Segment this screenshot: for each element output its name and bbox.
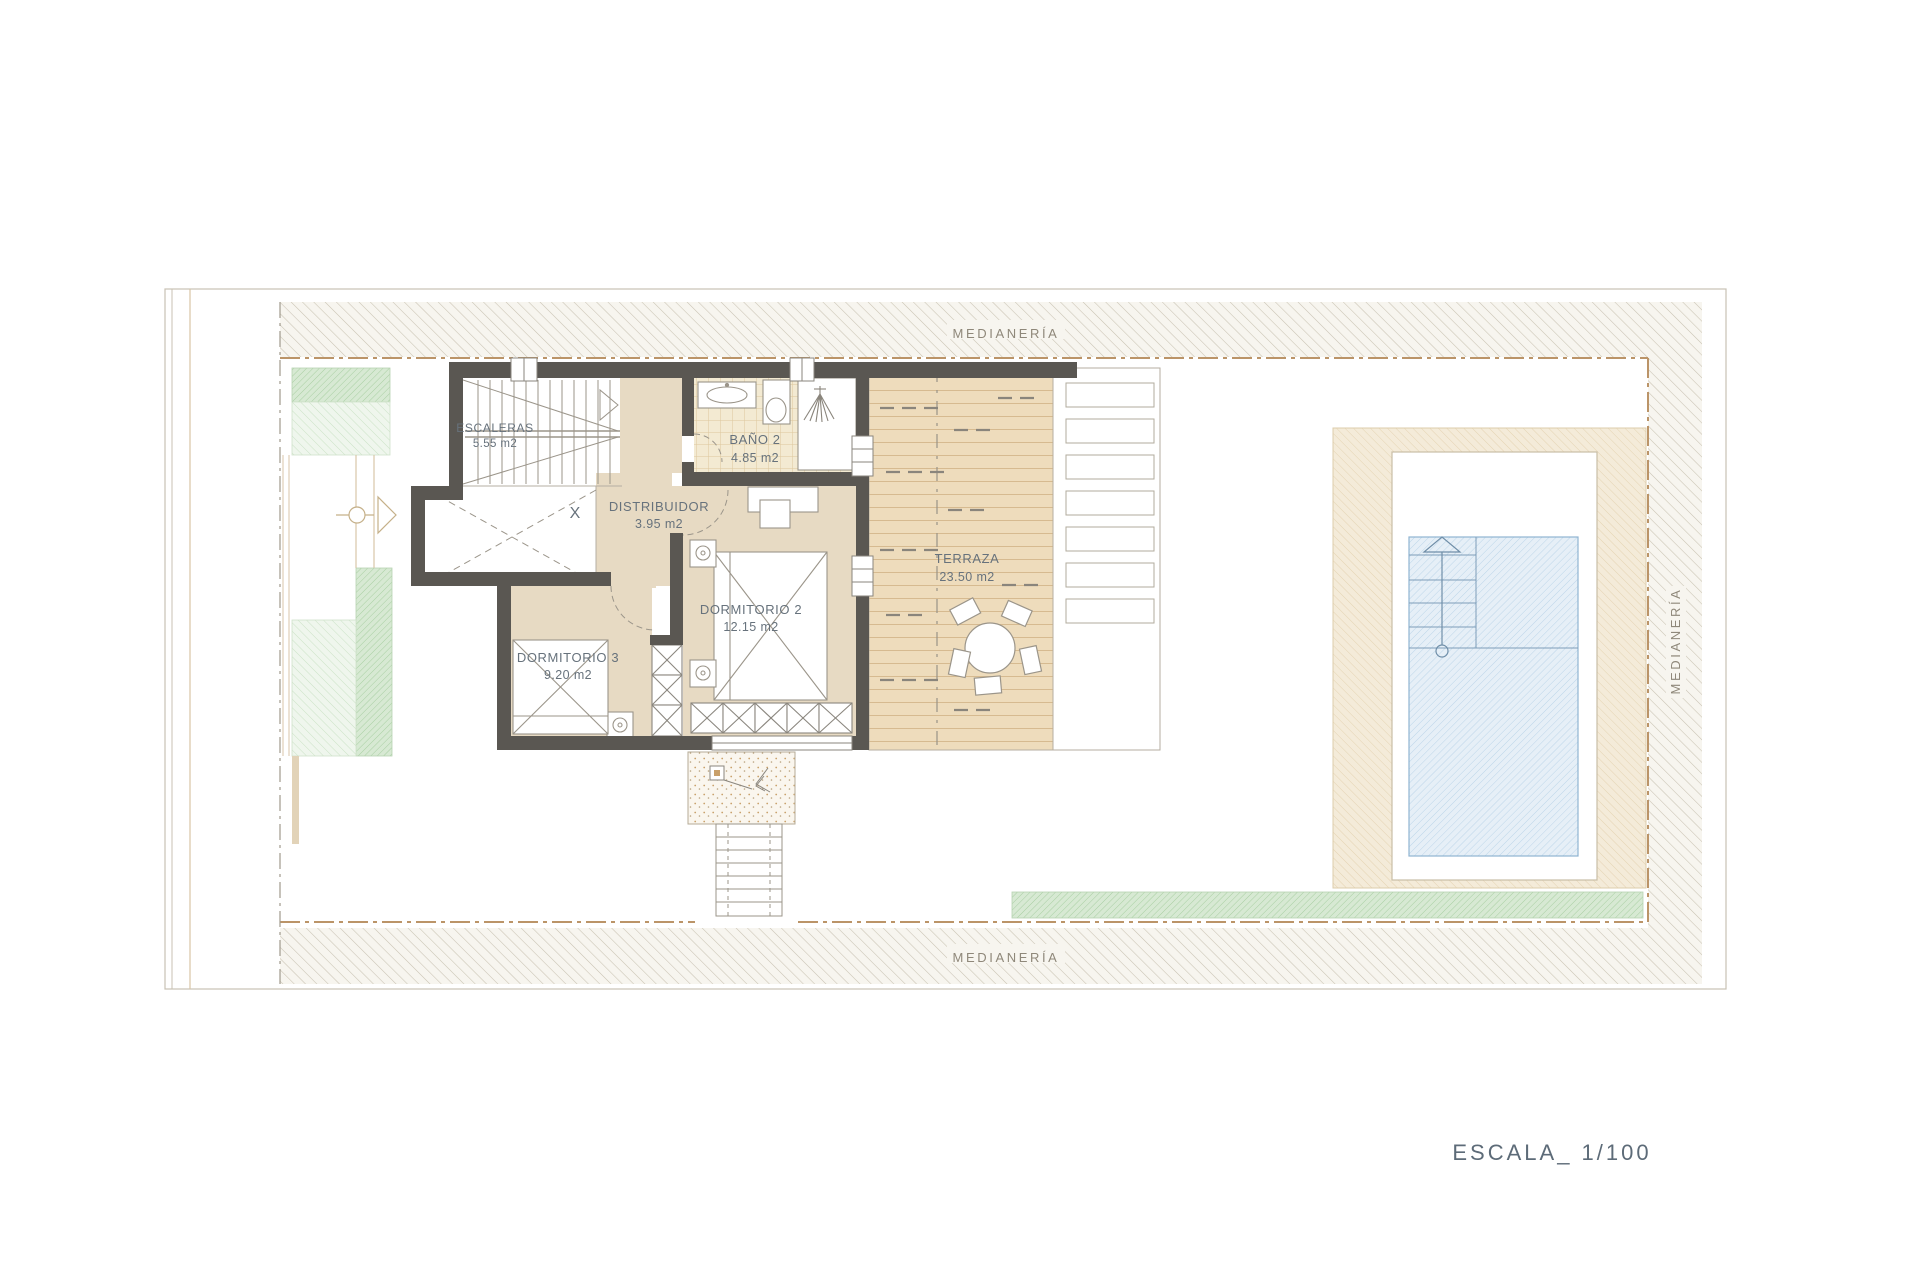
stairs-arrow-icon [600,390,618,420]
room-area-dormitorio3: 9.20 m2 [544,668,592,682]
room-label-escaleras: ESCALERAS [456,421,533,435]
scale-label: ESCALA_ 1/100 [1452,1140,1651,1165]
path-node-marker [349,507,365,523]
desk-chair [760,500,790,528]
wall-bath-bottom [682,472,857,486]
room-label-bano2: BAÑO 2 [729,432,780,447]
path-arrow-icon [378,497,396,533]
pergola-louvers [1066,383,1154,623]
medianeria-label-right: MEDIANERÍA [1668,588,1683,695]
entry-steps [716,824,782,916]
shower-tray [798,378,856,470]
medianeria-label-top: MEDIANERÍA [953,326,1060,341]
room-area-distribuidor: 3.95 m2 [635,517,683,531]
wall-dorm3-left [497,572,511,750]
pool [1333,428,1646,888]
wardrobe-column [652,645,682,736]
room-label-terraza: TERRAZA [935,551,1000,566]
room-area-bano2: 4.85 m2 [731,451,779,465]
floor-plan-drawing: ESCALERAS 5.55 m2 BAÑO 2 4.85 m2 DISTRIB… [0,0,1920,1280]
garden-left [283,368,396,844]
medianeria-label-bottom: MEDIANERÍA [953,950,1060,965]
porch-stipple [688,752,795,824]
room-label-distribuidor: DISTRIBUIDOR [609,499,709,514]
stair-void-marker: X [570,505,581,522]
pool-water [1409,537,1578,856]
bottom-hedge [1012,892,1643,918]
room-area-terraza: 23.50 m2 [939,570,994,584]
floor-plan-sheet: ESCALERAS 5.55 m2 BAÑO 2 4.85 m2 DISTRIB… [0,0,1920,1280]
room-label-dormitorio2: DORMITORIO 2 [700,602,802,617]
room-label-dormitorio3: DORMITORIO 3 [517,650,619,665]
wardrobe-strip [691,703,852,733]
wall-bottom [497,736,712,750]
porch-and-steps [688,752,795,916]
terrace-door-opening [852,436,873,476]
terrace-deck [869,368,1160,750]
wall-top [449,362,1077,378]
garden-fence-strip [292,756,299,844]
room-area-escaleras: 5.55 m2 [473,438,517,450]
room-area-dormitorio2: 12.15 m2 [723,620,778,634]
